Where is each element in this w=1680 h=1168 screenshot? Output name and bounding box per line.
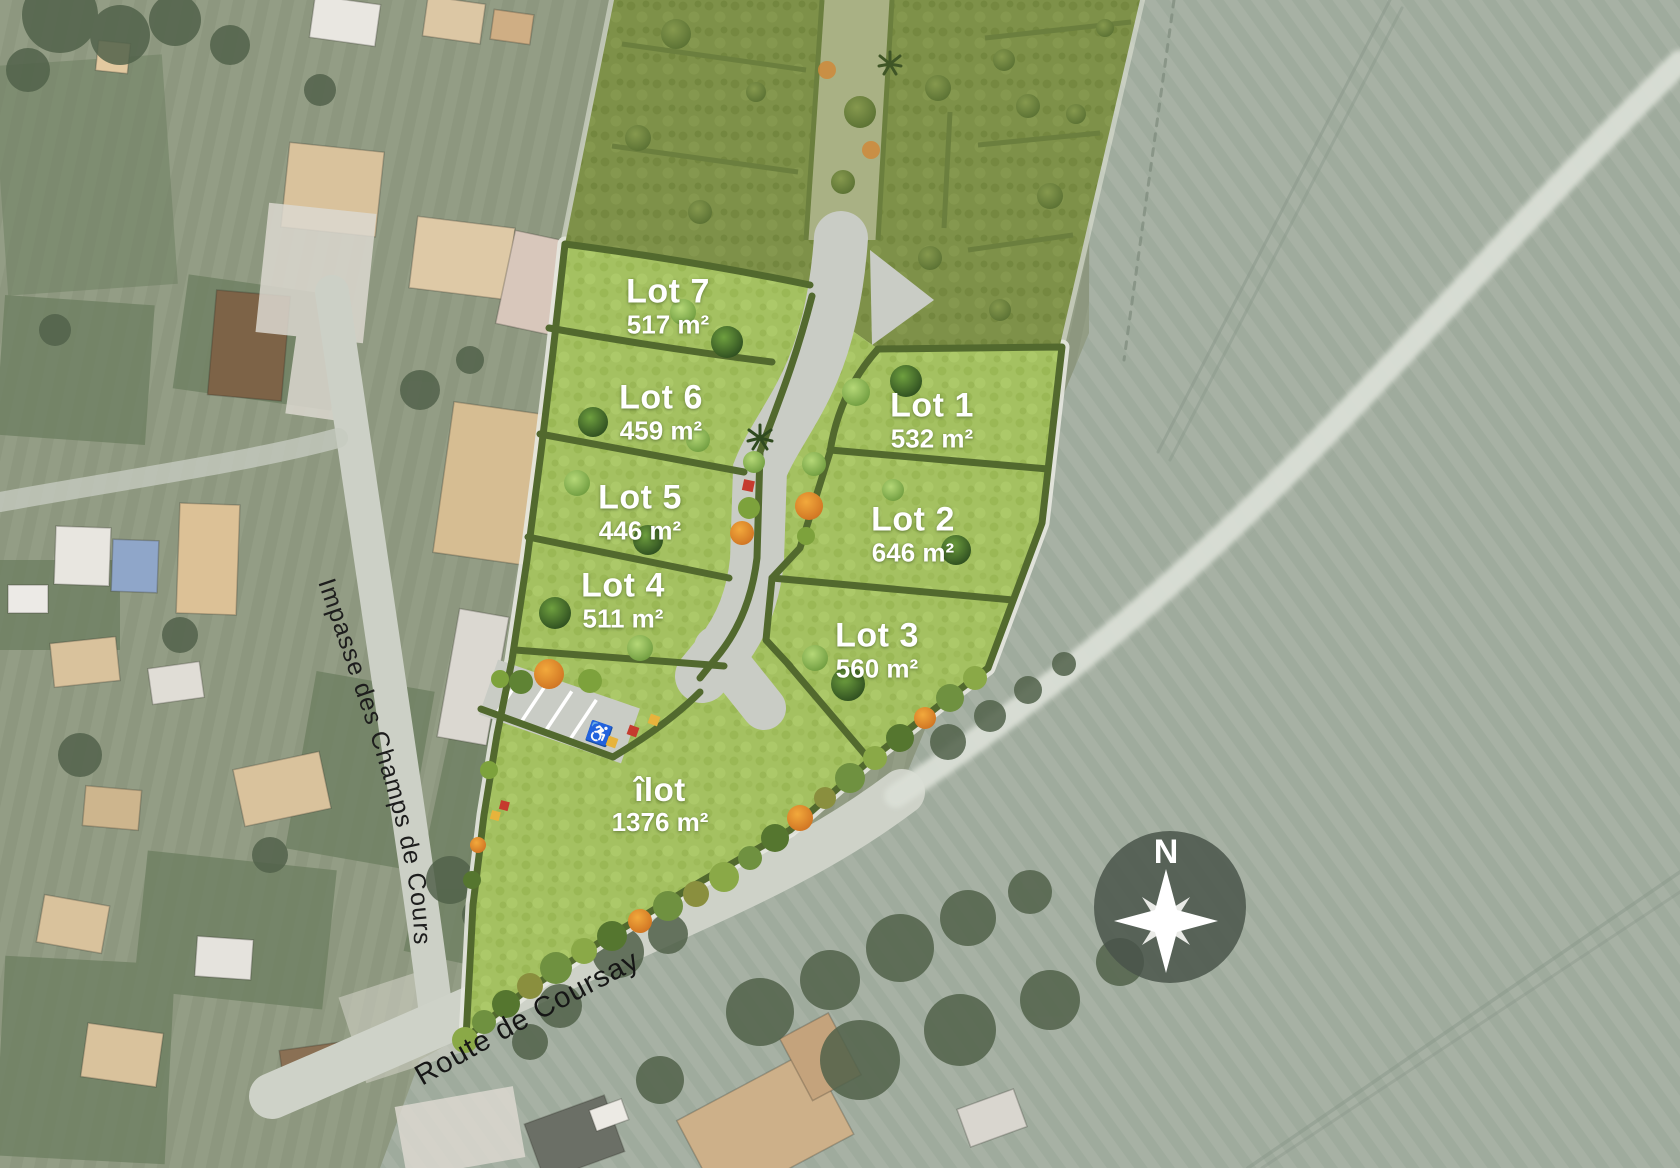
- lot-label-1: Lot 1 532 m²: [890, 388, 974, 453]
- lot-number: Lot 3: [835, 618, 919, 655]
- lot-area: 517 m²: [626, 310, 710, 338]
- lot-area: 459 m²: [619, 416, 703, 444]
- lot-number: Lot 1: [890, 388, 974, 425]
- lot-number: îlot: [612, 772, 709, 808]
- lot-number: Lot 4: [581, 568, 665, 605]
- lot-area: 646 m²: [871, 538, 955, 566]
- lot-number: Lot 7: [626, 274, 710, 311]
- lot-label-6: Lot 6 459 m²: [619, 380, 703, 445]
- lot-number: Lot 6: [619, 380, 703, 417]
- aerial-map-canvas: ♿: [0, 0, 1680, 1168]
- lot-number: Lot 2: [871, 502, 955, 539]
- lot-label-ilot: îlot 1376 m²: [612, 772, 709, 836]
- compass-north-label: N: [1154, 833, 1179, 871]
- lot-area: 511 m²: [581, 604, 665, 632]
- compass-rose: N: [1094, 831, 1246, 983]
- lot-label-7: Lot 7 517 m²: [626, 274, 710, 339]
- lot-label-3: Lot 3 560 m²: [835, 618, 919, 683]
- lot-label-5: Lot 5 446 m²: [598, 480, 682, 545]
- lot-area: 1376 m²: [612, 808, 709, 836]
- lot-label-4: Lot 4 511 m²: [581, 568, 665, 633]
- lot-area: 560 m²: [835, 654, 919, 682]
- lot-area: 532 m²: [890, 424, 974, 452]
- site-plan-map: ♿: [0, 0, 1680, 1168]
- lot-label-2: Lot 2 646 m²: [871, 502, 955, 567]
- lot-area: 446 m²: [598, 516, 682, 544]
- lot-number: Lot 5: [598, 480, 682, 517]
